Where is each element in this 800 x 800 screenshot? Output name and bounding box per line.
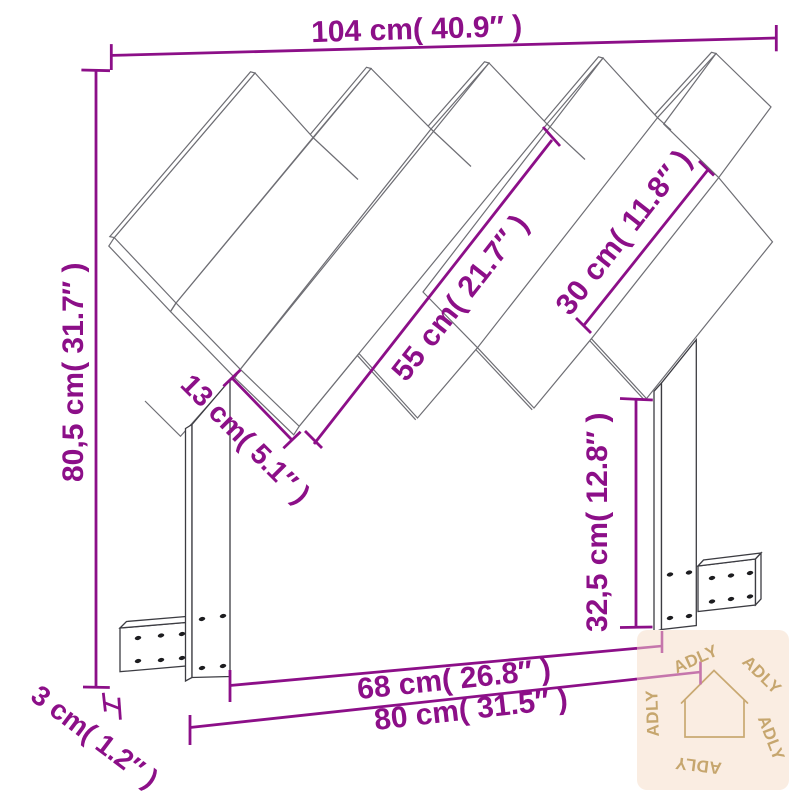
svg-text:ADLY: ADLY bbox=[642, 689, 663, 737]
svg-text:104 cm( 40.9″ ): 104 cm( 40.9″ ) bbox=[311, 10, 523, 49]
svg-text:80,5 cm( 31.7″ ): 80,5 cm( 31.7″ ) bbox=[57, 263, 90, 483]
svg-text:32,5 cm( 12.8″ ): 32,5 cm( 12.8″ ) bbox=[581, 413, 614, 633]
